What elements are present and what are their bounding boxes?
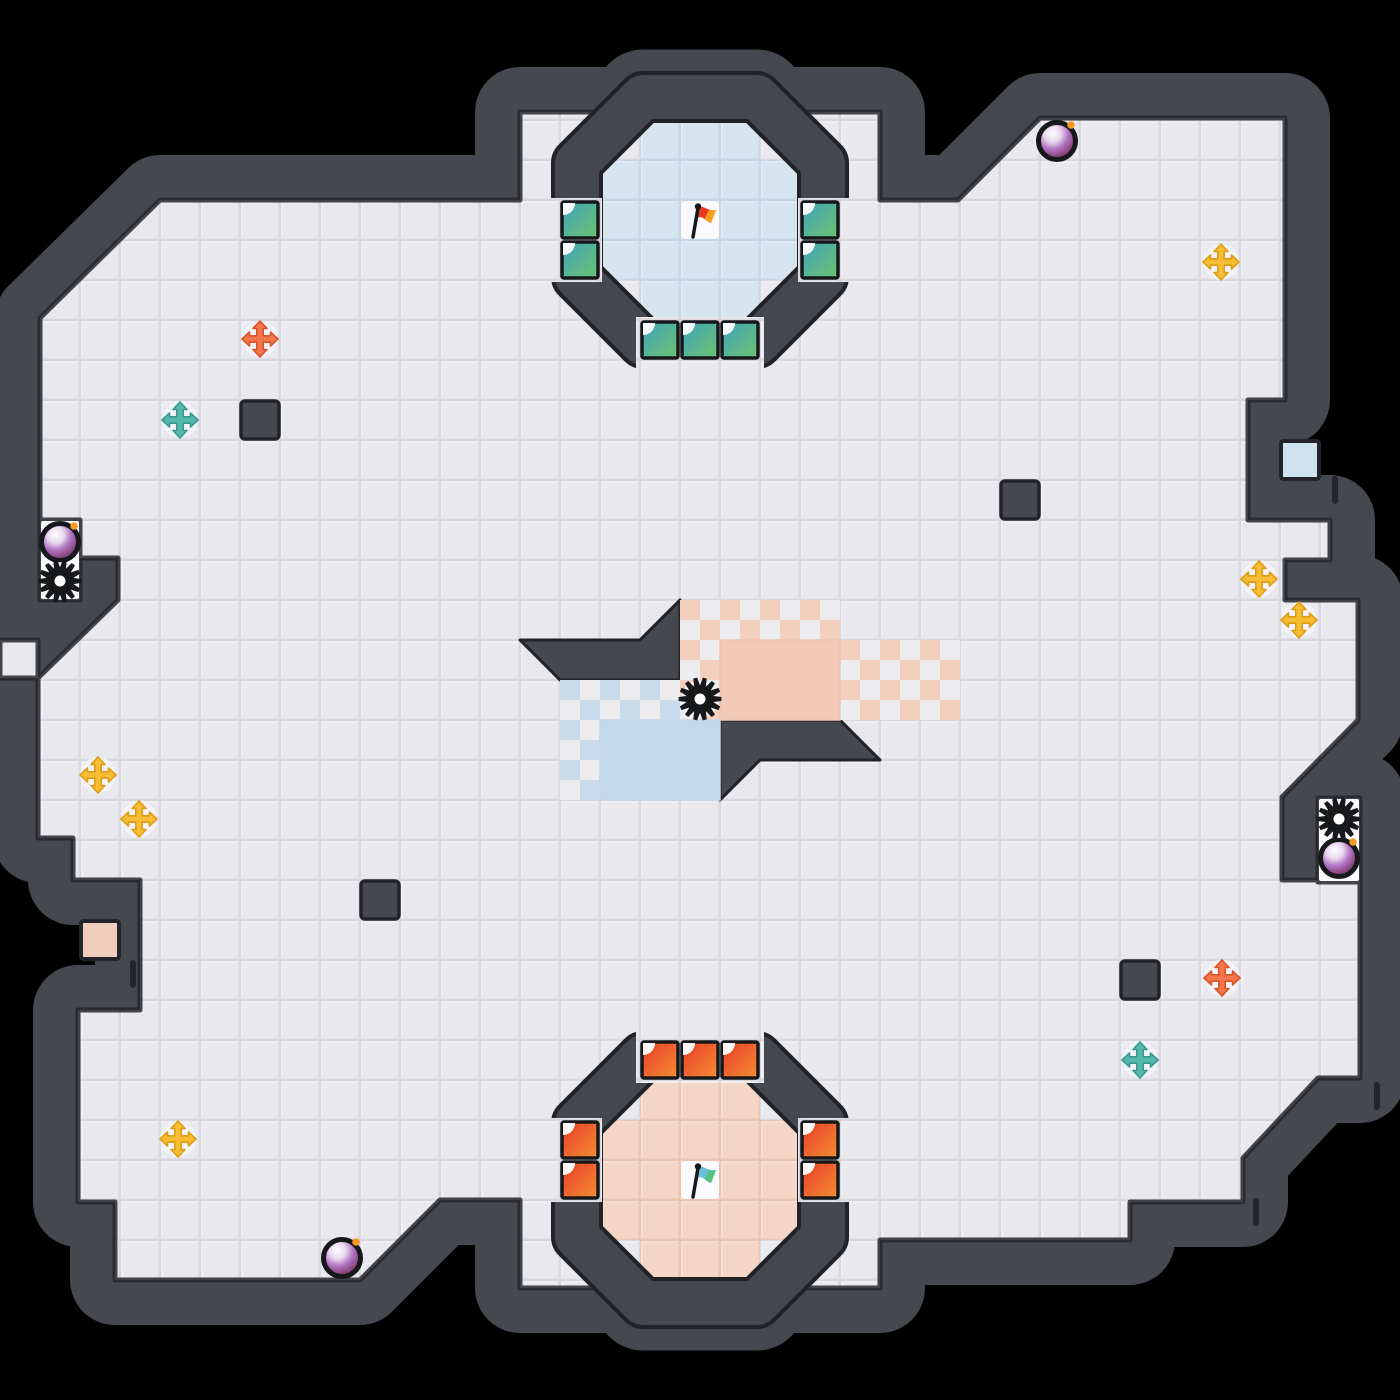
red-boost-tile[interactable]: [722, 1042, 758, 1078]
bomb-icon[interactable]: [1321, 838, 1358, 876]
red-boost-tile[interactable]: [802, 1162, 838, 1198]
orange-powerup-icon[interactable]: [1204, 960, 1240, 996]
blue-base-floor: [640, 120, 760, 160]
green-boost-tile[interactable]: [562, 202, 598, 238]
pink-checker-zone: [680, 600, 840, 640]
blue-solid-zone: [600, 720, 720, 800]
green-boost-tile[interactable]: [682, 322, 718, 358]
yellow-powerup-icon[interactable]: [160, 1121, 196, 1157]
yellow-powerup-icon[interactable]: [80, 757, 116, 793]
green-boost-tile[interactable]: [802, 242, 838, 278]
bomb-icon[interactable]: [42, 522, 79, 560]
green-boost-tile[interactable]: [642, 322, 678, 358]
wall-tick: [130, 960, 136, 988]
wall-block: [1001, 481, 1039, 519]
wall-block: [1121, 961, 1159, 999]
red-boost-tile[interactable]: [562, 1122, 598, 1158]
wall-block: [241, 401, 279, 439]
game-map[interactable]: [0, 0, 1400, 1400]
pink-base-floor: [640, 1240, 760, 1280]
blue-base-floor: [640, 280, 760, 320]
red-boost-tile[interactable]: [802, 1122, 838, 1158]
wall-tick: [1374, 1082, 1380, 1110]
bomb-icon[interactable]: [1039, 121, 1076, 159]
yellow-powerup-icon[interactable]: [1203, 244, 1239, 280]
red-boost-tile[interactable]: [642, 1042, 678, 1078]
wall-tick: [1253, 1198, 1259, 1226]
yellow-powerup-icon[interactable]: [121, 801, 157, 837]
bomb-icon[interactable]: [324, 1238, 361, 1276]
bomb-spark: [1349, 838, 1357, 846]
game-stage: [0, 0, 1400, 1400]
blue-gate-tile: [1281, 441, 1319, 479]
green-boost-tile[interactable]: [722, 322, 758, 358]
pink-checker-zone: [840, 640, 960, 720]
yellow-powerup-icon[interactable]: [1241, 561, 1277, 597]
green-boost-tile[interactable]: [802, 202, 838, 238]
orange-powerup-icon[interactable]: [242, 321, 278, 357]
bomb-spark: [1067, 121, 1075, 129]
teal-powerup-icon[interactable]: [162, 402, 198, 438]
wall-tick: [1332, 476, 1338, 504]
yellow-powerup-icon[interactable]: [1281, 602, 1317, 638]
teal-powerup-icon[interactable]: [1122, 1042, 1158, 1078]
wall-block: [361, 881, 399, 919]
pink-gate-tile: [81, 921, 119, 959]
bomb-spark: [70, 522, 78, 530]
pink-base-floor: [640, 1080, 760, 1120]
blue-checker-zone: [560, 720, 600, 800]
pink-solid-zone: [720, 640, 840, 720]
bomb-spark: [352, 1238, 360, 1246]
red-boost-tile[interactable]: [682, 1042, 718, 1078]
green-boost-tile[interactable]: [562, 242, 598, 278]
red-boost-tile[interactable]: [562, 1162, 598, 1198]
blue-checker-zone: [560, 680, 680, 720]
